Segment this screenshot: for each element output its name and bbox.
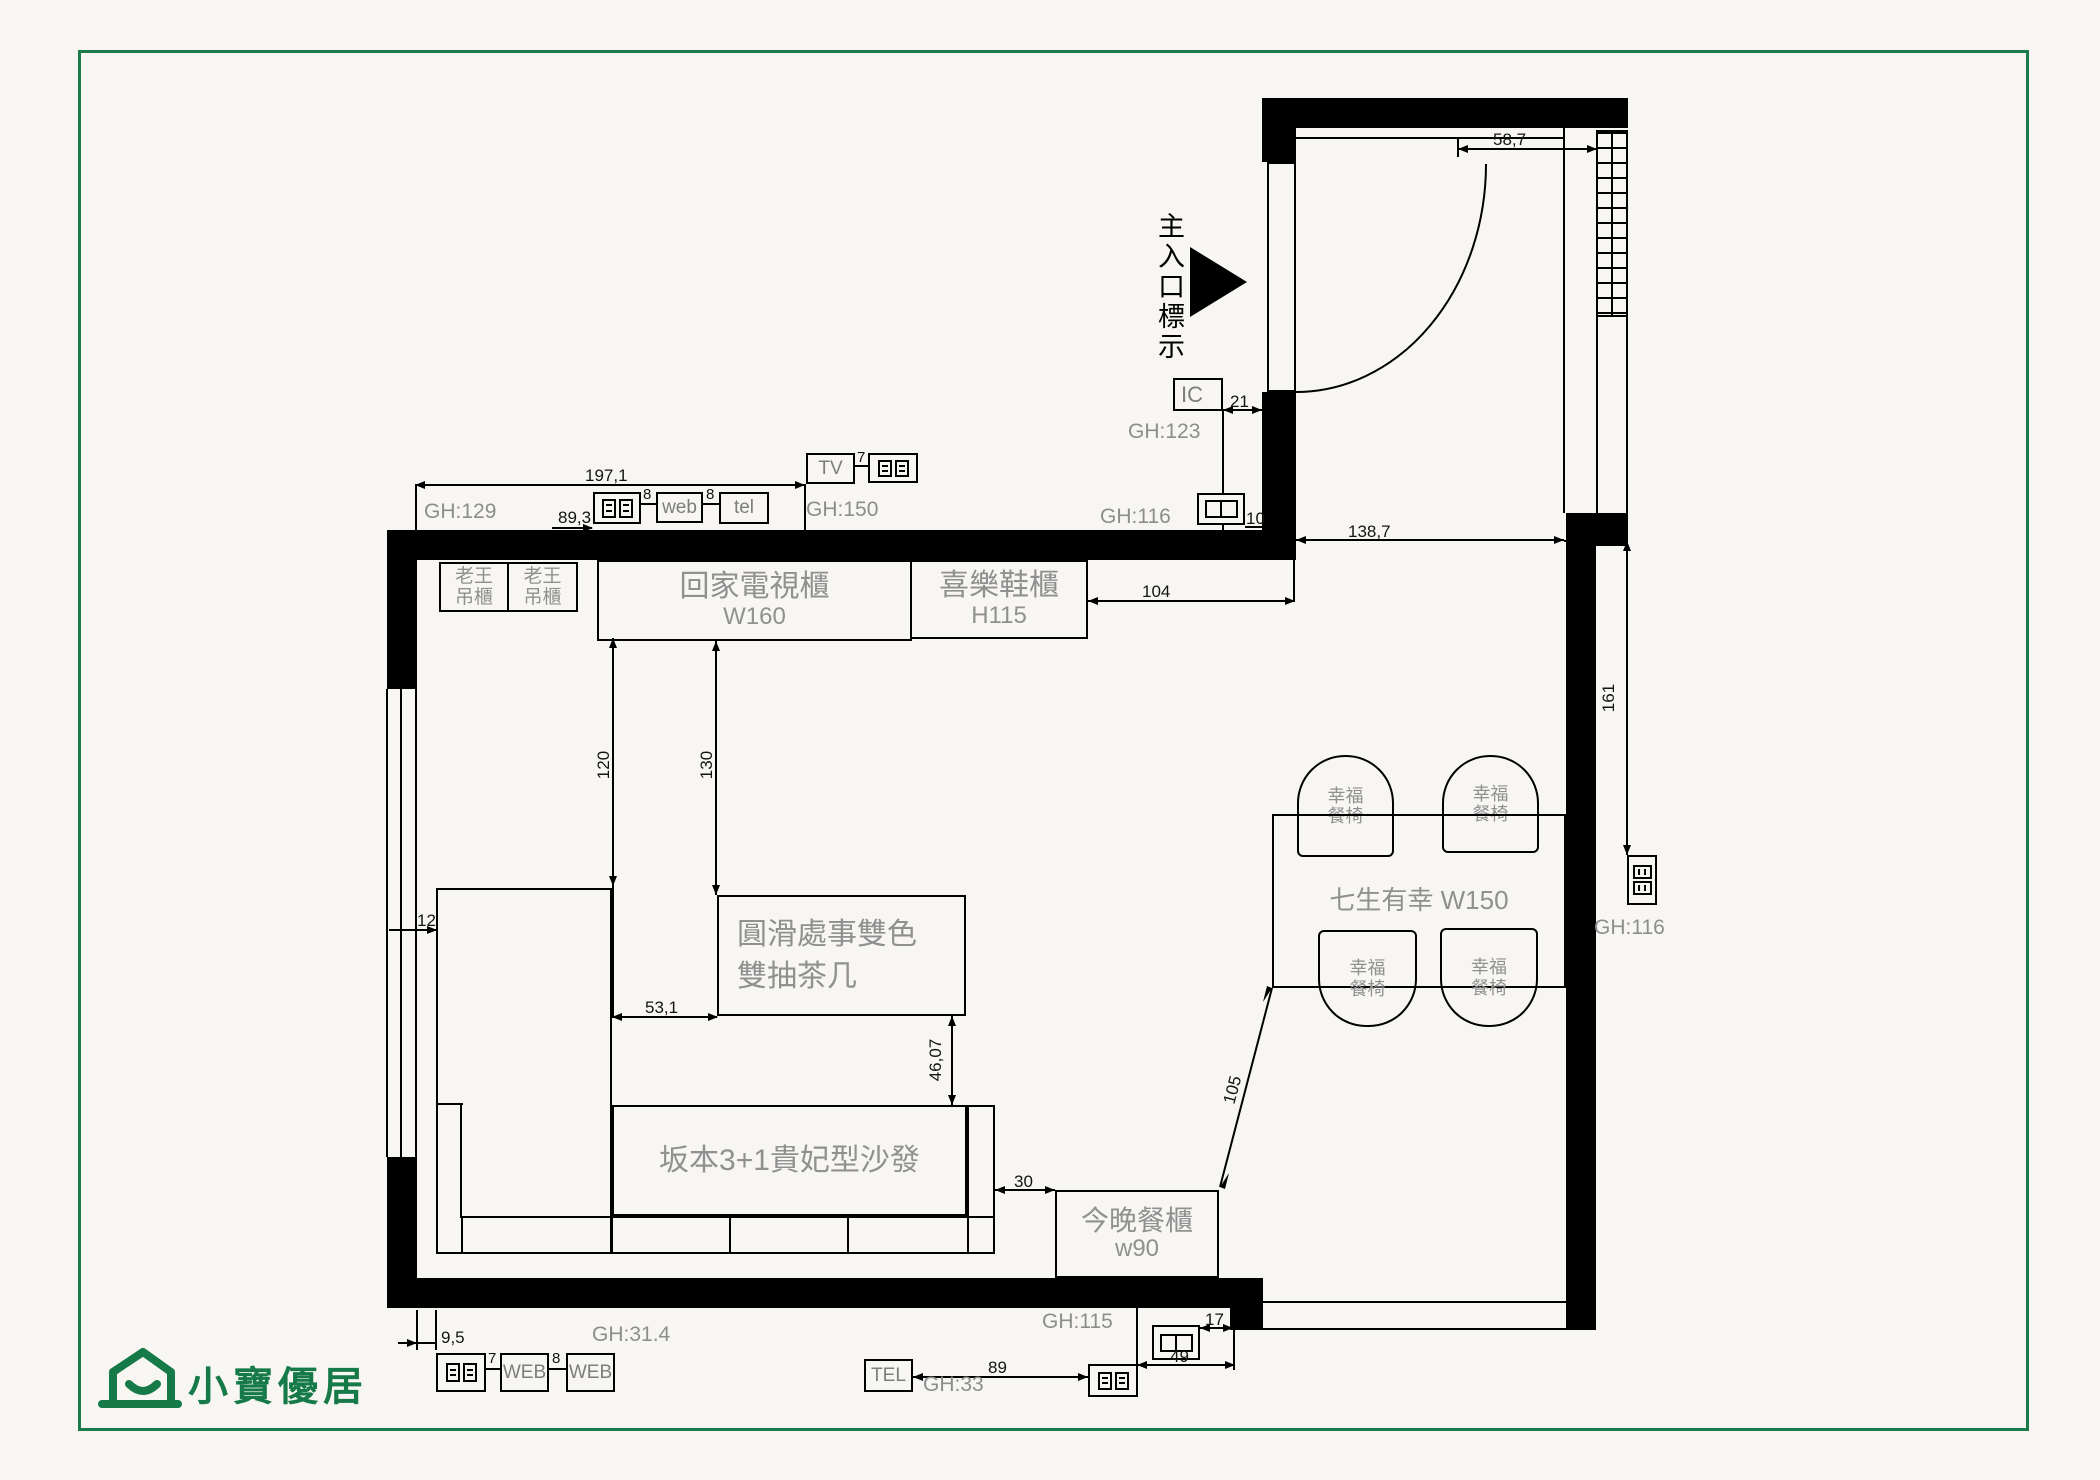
dim-7b: 7 (488, 1350, 496, 1367)
sideboard-size: w90 (1115, 1236, 1159, 1263)
wall-dining-right (1566, 546, 1596, 1330)
dim-21: 21 (1230, 392, 1249, 412)
dim-893: 89,3 (558, 508, 591, 528)
shoe-cabinet: 喜樂鞋櫃 H115 (910, 560, 1088, 639)
outlet-icon (602, 499, 616, 518)
sofa-seat-band (461, 1216, 995, 1254)
right-wall-inner-line (1563, 128, 1565, 513)
sofa-seat-divider (611, 1216, 613, 1254)
dim-161: 161 (1599, 668, 1619, 728)
tel-port-label: tel (734, 497, 754, 519)
dim-89: 89 (988, 1358, 1007, 1378)
ic-label: IC (1181, 382, 1203, 408)
gh-33: GH:33 (923, 1373, 984, 1397)
dim-1387: 138,7 (1348, 522, 1391, 542)
power-outlet-bottom-mid (1088, 1364, 1138, 1397)
web-lower-label: WEB (503, 1362, 546, 1384)
sofa-seat-divider (729, 1216, 731, 1254)
wall-right-block (1566, 513, 1628, 546)
dining-chair-4: 幸福 餐椅 (1440, 928, 1538, 1027)
ext-line (415, 484, 417, 530)
dim-line-entry-width (1296, 539, 1564, 541)
sofa-label: 坂本3+1貴妃型沙發 (659, 1144, 920, 1178)
dining-chair-3: 幸福 餐椅 (1318, 930, 1417, 1027)
door-leaf (1267, 162, 1296, 392)
web-lower-label2: WEB (569, 1362, 612, 1384)
dim-587: 58,7 (1493, 130, 1526, 150)
power-outlet-bottom-left (436, 1353, 486, 1392)
outlet-icon (1633, 865, 1652, 879)
gh-150: GH:150 (806, 498, 878, 522)
sofa-armrest-line-h (436, 1103, 463, 1105)
dim-17: 17 (1205, 1310, 1224, 1330)
tv-cabinet: 回家電視櫃 W160 (597, 560, 912, 641)
wall-left-upper (387, 530, 417, 689)
tel-lower-label: TEL (871, 1365, 906, 1387)
ext-line (435, 1310, 437, 1350)
tel-port-box-lower: TEL (864, 1359, 913, 1392)
dim-130: 130 (697, 735, 717, 795)
outlet-icon (1098, 1372, 1112, 1390)
dim-531: 53,1 (645, 998, 678, 1018)
wall-door-jamb-lower (1262, 392, 1296, 560)
outlet-icon (446, 1363, 460, 1382)
sofa-chaise (436, 888, 612, 1254)
wall-bottom-end-block (1230, 1278, 1263, 1330)
dim-120: 120 (594, 735, 614, 795)
power-outlet-tv-wall (593, 492, 641, 524)
coffee-table-label: 圓滑處事雙色 (737, 918, 917, 952)
tv-cabinet-size: W160 (723, 604, 786, 631)
outlet-icon (1633, 881, 1652, 895)
dim-12: 12 (417, 911, 436, 931)
ext-line (612, 886, 614, 1017)
outlet-icon (1205, 500, 1238, 518)
sofa-armrest-line-v (460, 1103, 462, 1218)
sideboard-label: 今晚餐櫃 (1081, 1205, 1193, 1236)
ext-line (1293, 560, 1295, 602)
gh-129: GH:129 (424, 500, 496, 524)
coffee-table: 圓滑處事雙色 雙抽茶几 (717, 895, 966, 1016)
web-port-box-lower-2: WEB (566, 1353, 615, 1392)
sideboard: 今晚餐櫃 w90 (1055, 1190, 1219, 1278)
outlet-icon (463, 1363, 477, 1382)
dim-95: 9,5 (441, 1328, 465, 1348)
hanging-cabinet-1: 老王 吊櫃 (439, 562, 509, 612)
dim-8b: 8 (706, 486, 714, 503)
gh-115: GH:115 (1042, 1310, 1113, 1334)
tv-outlet-entry (1197, 493, 1245, 525)
dim-10: 10 (1246, 509, 1265, 529)
hanging-cabinet-2-label: 老王 (523, 566, 561, 587)
dim-line-8a (641, 503, 656, 505)
dim-line-8c (549, 1368, 566, 1370)
wall-door-jamb-upper (1262, 98, 1296, 162)
hanging-cabinet-2-label2: 吊櫃 (523, 587, 561, 608)
shoe-cabinet-label: 喜樂鞋櫃 (939, 569, 1059, 603)
outlet-icon (895, 460, 909, 477)
dim-30: 30 (1014, 1172, 1033, 1192)
gh-123: GH:123 (1128, 420, 1200, 444)
chair-label: 幸福 (1473, 784, 1509, 804)
outlet-icon (619, 499, 633, 518)
sofa-back: 坂本3+1貴妃型沙發 (612, 1105, 967, 1216)
chair-label: 幸福 (1471, 957, 1507, 977)
power-outlet-above-tv (868, 453, 918, 483)
dim-line-95 (398, 1342, 436, 1344)
window-bottom-right-line (1263, 1301, 1566, 1303)
coffee-table-label2: 雙抽茶几 (737, 960, 857, 994)
window-right-column (1596, 317, 1628, 513)
tv-port-box: TV (806, 453, 855, 484)
dim-line-4607 (951, 1016, 953, 1105)
dining-table-label: 七生有幸 W150 (1329, 886, 1508, 915)
tel-port-box: tel (719, 492, 769, 524)
window-left-line (386, 689, 388, 1157)
chair-label: 幸福 (1328, 786, 1364, 806)
dim-top-width: 197,1 (585, 466, 628, 486)
dim-line-8b (703, 503, 719, 505)
dim-line-161 (1626, 541, 1628, 855)
dim-8a: 8 (643, 486, 651, 503)
web-port-box-lower-1: WEB (500, 1353, 549, 1392)
gh-116-right: GH:116 (1594, 916, 1665, 940)
wall-bottom (387, 1278, 1263, 1308)
plan-frame (78, 50, 2029, 1431)
floor-plan-canvas: 老王 吊櫃 老王 吊櫃 回家電視櫃 W160 喜樂鞋櫃 H115 圓滑處事雙色 … (0, 0, 2100, 1480)
window-bottom-right-line (1263, 1328, 1566, 1330)
web-port-label: web (662, 497, 697, 519)
wall-entry-top (1262, 98, 1628, 128)
hanging-cabinet-1-label2: 吊櫃 (455, 587, 493, 608)
logo-text: 小寶優居 (188, 1354, 368, 1412)
dim-104: 104 (1142, 582, 1170, 602)
window-left-line (400, 689, 402, 1157)
gh-314: GH:31.4 (592, 1323, 670, 1347)
tv-port-label: TV (818, 458, 842, 480)
hanging-cabinet-1-label: 老王 (455, 566, 493, 587)
dim-4607: 46,07 (926, 1030, 946, 1090)
dim-line-7b (486, 1368, 500, 1370)
gh-116-top: GH:116 (1100, 505, 1171, 529)
chair-label2: 餐椅 (1471, 978, 1507, 998)
web-port-box: web (656, 492, 703, 523)
wall-hatch-column (1596, 130, 1628, 317)
chair-label: 幸福 (1350, 958, 1386, 978)
shoe-cabinet-size: H115 (971, 603, 1027, 630)
chair-label2: 餐椅 (1350, 979, 1386, 999)
sofa-armrest-right (967, 1105, 995, 1254)
tv-cabinet-label: 回家電視櫃 (680, 570, 830, 604)
dim-8c: 8 (552, 1350, 560, 1367)
outlet-icon (878, 460, 892, 477)
outlet-icon (1115, 1372, 1129, 1390)
wall-top-living (387, 530, 1290, 560)
hanging-cabinet-2: 老王 吊櫃 (507, 562, 578, 612)
dim-line-104 (1088, 600, 1295, 602)
ic-box: IC (1173, 378, 1223, 411)
power-outlet-dining (1627, 855, 1657, 905)
entrance-label: 主入口標示 (1150, 212, 1189, 362)
dim-7a: 7 (857, 449, 865, 466)
dim-49: 49 (1170, 1347, 1189, 1367)
sofa-seat-divider (847, 1216, 849, 1254)
dim-line-door (1458, 148, 1597, 150)
